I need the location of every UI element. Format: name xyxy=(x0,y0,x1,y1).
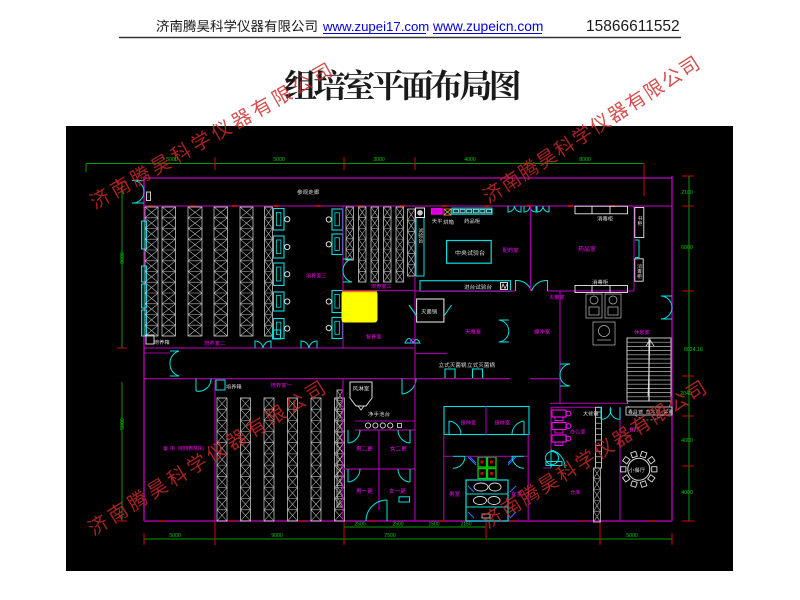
svg-text:5000: 5000 xyxy=(273,157,285,163)
svg-text:6000: 6000 xyxy=(681,245,693,251)
svg-text:8024.16: 8024.16 xyxy=(684,347,703,353)
svg-text:www.zupeicn.com: www.zupeicn.com xyxy=(432,19,543,34)
svg-text:8000: 8000 xyxy=(579,157,591,163)
svg-text:4000: 4000 xyxy=(681,438,693,444)
svg-text:3000: 3000 xyxy=(373,157,385,163)
svg-text:5000: 5000 xyxy=(169,533,181,539)
svg-text:www.zupei17.com: www.zupei17.com xyxy=(322,19,429,34)
svg-text:2500: 2500 xyxy=(392,522,403,528)
svg-text:9000: 9000 xyxy=(120,252,126,264)
svg-text:4000: 4000 xyxy=(681,490,693,496)
svg-text:2150: 2150 xyxy=(460,522,471,528)
svg-text:5000: 5000 xyxy=(120,418,126,430)
svg-text:5000: 5000 xyxy=(166,157,178,163)
svg-text:15866611552: 15866611552 xyxy=(586,18,680,35)
svg-text:2500: 2500 xyxy=(354,522,365,528)
svg-text:4000: 4000 xyxy=(464,157,476,163)
svg-text:7500: 7500 xyxy=(384,533,396,539)
svg-text:5000: 5000 xyxy=(626,533,638,539)
svg-text:2100: 2100 xyxy=(681,190,693,196)
svg-text:9000: 9000 xyxy=(271,533,283,539)
svg-text:1500: 1500 xyxy=(428,522,439,528)
